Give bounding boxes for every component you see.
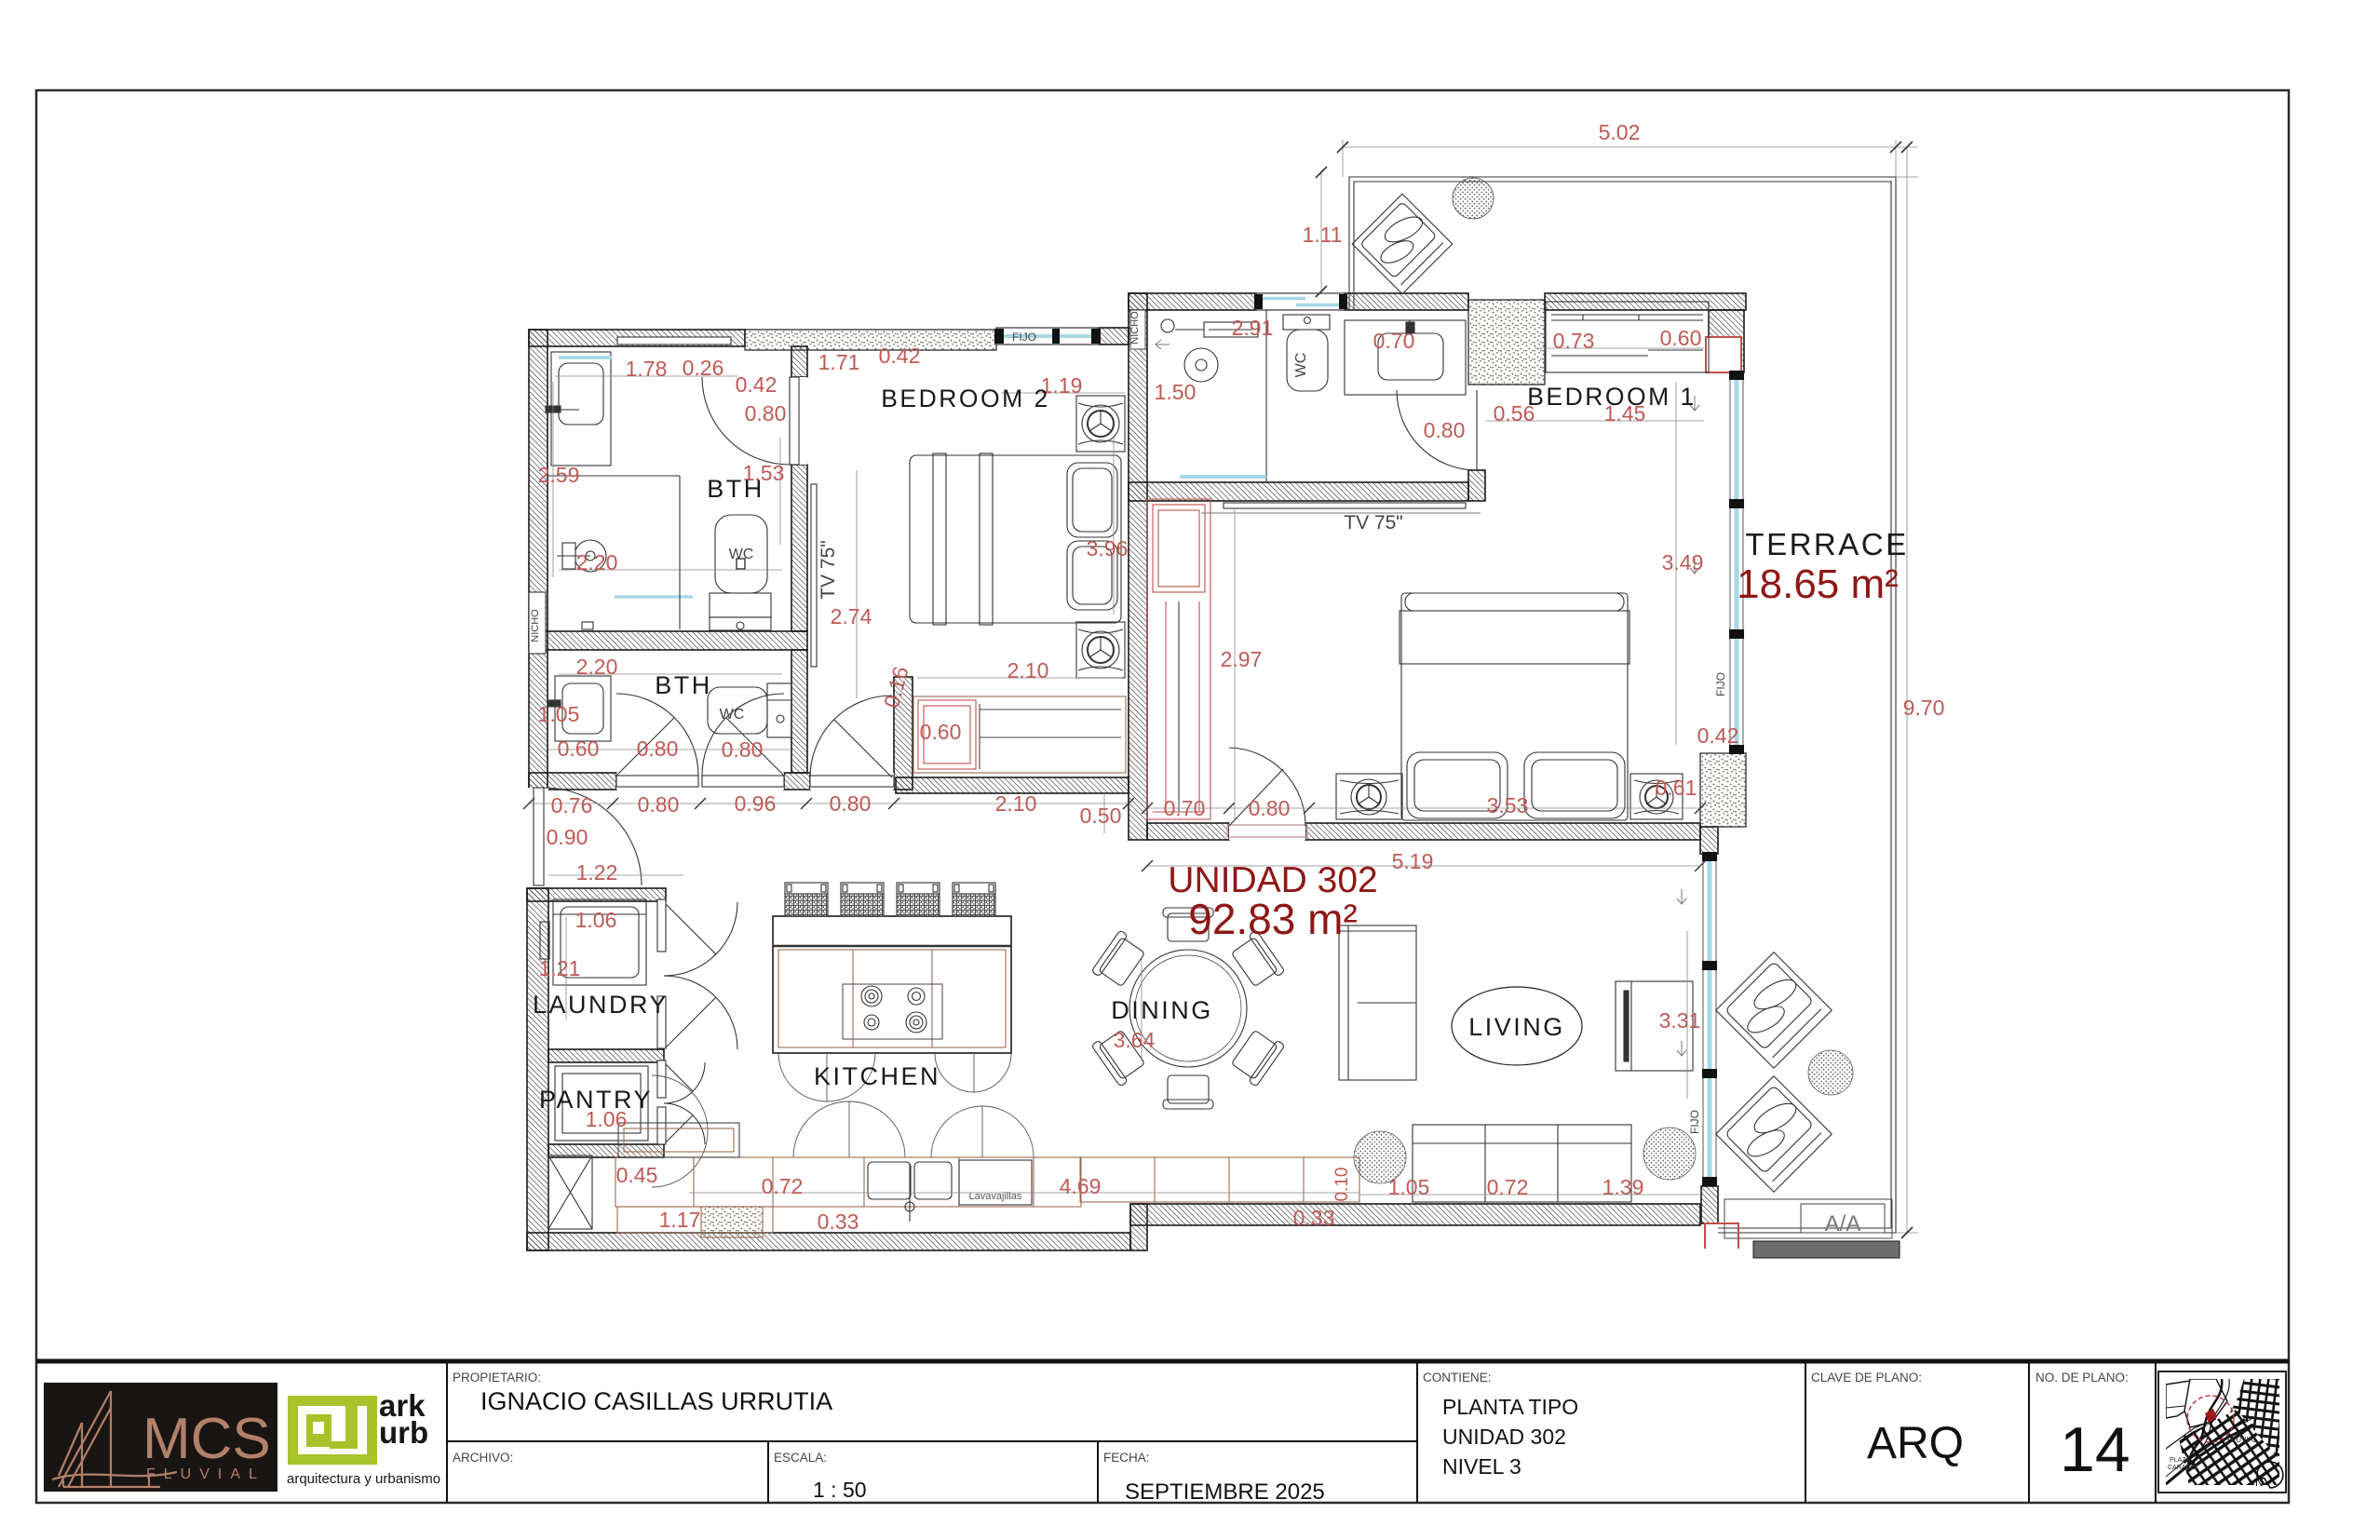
svg-text:0.42: 0.42	[736, 372, 778, 397]
svg-text:0.33: 0.33	[818, 1209, 859, 1234]
svg-text:FIJO: FIJO	[1012, 331, 1036, 344]
svg-text:1.11: 1.11	[1302, 223, 1342, 247]
svg-text:1.71: 1.71	[818, 350, 860, 374]
svg-text:0.72: 0.72	[1487, 1175, 1529, 1199]
svg-text:BTH: BTH	[655, 671, 712, 699]
svg-text:5.19: 5.19	[1392, 849, 1434, 873]
svg-text:4.69: 4.69	[1060, 1174, 1102, 1198]
svg-text:NIVEL 3: NIVEL 3	[1442, 1454, 1521, 1479]
svg-text:18.65 m²: 18.65 m²	[1737, 561, 1899, 607]
svg-text:FIJO: FIJO	[1714, 672, 1727, 696]
svg-text:0.61: 0.61	[1656, 776, 1697, 800]
svg-text:LAUNDRY: LAUNDRY	[533, 991, 669, 1019]
svg-text:NO. DE PLANO:: NO. DE PLANO:	[2035, 1371, 2129, 1385]
svg-text:BTH: BTH	[707, 475, 764, 503]
svg-text:1.21: 1.21	[539, 956, 581, 980]
svg-text:0.45: 0.45	[616, 1163, 658, 1187]
svg-text:0.76: 0.76	[551, 793, 593, 817]
svg-text:2.59: 2.59	[538, 463, 580, 487]
svg-text:FLUVIAL: FLUVIAL	[146, 1466, 265, 1482]
svg-text:0.70: 0.70	[1373, 329, 1415, 353]
svg-text:arquitectura y urbanismo: arquitectura y urbanismo	[287, 1471, 440, 1487]
svg-text:0.42: 0.42	[1697, 723, 1739, 748]
svg-text:KITCHEN: KITCHEN	[814, 1062, 940, 1090]
svg-text:CARACOL: CARACOL	[2168, 1465, 2199, 1471]
svg-text:IGNACIO CASILLAS URRUTIA: IGNACIO CASILLAS URRUTIA	[480, 1387, 832, 1415]
svg-text:1.39: 1.39	[1602, 1175, 1644, 1199]
svg-text:9.70: 9.70	[1903, 696, 1945, 720]
svg-text:WC: WC	[1293, 353, 1309, 378]
svg-text:3.31: 3.31	[1659, 1008, 1701, 1033]
svg-text:CONTIENE:: CONTIENE:	[1423, 1371, 1492, 1385]
svg-text:0.80: 0.80	[830, 791, 872, 816]
svg-text:BEDROOM 2: BEDROOM 2	[881, 385, 1050, 412]
svg-text:3.64: 3.64	[1114, 1028, 1156, 1052]
svg-text:0.96: 0.96	[735, 791, 777, 816]
svg-text:3.96: 3.96	[1087, 536, 1129, 561]
svg-text:PROPIETARIO:: PROPIETARIO:	[453, 1371, 541, 1385]
svg-text:FIJO: FIJO	[1688, 1110, 1701, 1134]
svg-text:FECHA:: FECHA:	[1103, 1451, 1150, 1465]
svg-text:TV 75": TV 75"	[1344, 512, 1402, 534]
svg-text:PLANTA TIPO: PLANTA TIPO	[1442, 1395, 1578, 1419]
svg-text:0.80: 0.80	[638, 792, 680, 817]
svg-text:A/A: A/A	[1825, 1211, 1861, 1236]
svg-text:N: N	[2255, 1476, 2264, 1489]
svg-text:1.78: 1.78	[626, 357, 668, 381]
svg-text:WC: WC	[720, 707, 745, 723]
svg-text:0.80: 0.80	[1249, 796, 1291, 820]
svg-text:0.50: 0.50	[1080, 804, 1122, 828]
svg-text:2.91: 2.91	[1232, 316, 1274, 340]
svg-text:0.60: 0.60	[1660, 326, 1702, 350]
svg-text:0.60: 0.60	[558, 736, 600, 761]
svg-text:0.80: 0.80	[1424, 418, 1466, 442]
svg-text:0.80: 0.80	[745, 401, 787, 426]
svg-text:SEPTIEMBRE 2025: SEPTIEMBRE 2025	[1125, 1479, 1325, 1505]
svg-text:ESCALA:: ESCALA:	[774, 1451, 827, 1465]
svg-text:WC: WC	[729, 547, 754, 562]
svg-text:ARCHIVO:: ARCHIVO:	[453, 1451, 513, 1465]
svg-text:urb: urb	[379, 1415, 428, 1450]
svg-text:DINING: DINING	[1111, 996, 1213, 1024]
svg-text:CLAVE DE PLANO:: CLAVE DE PLANO:	[1811, 1371, 1922, 1385]
svg-text:0.60: 0.60	[920, 720, 962, 744]
svg-text:2.10: 2.10	[995, 791, 1037, 816]
svg-text:BEDROOM 1: BEDROOM 1	[1527, 383, 1697, 411]
svg-text:3.53: 3.53	[1487, 793, 1529, 817]
svg-text:1.22: 1.22	[576, 860, 618, 885]
svg-text:1.05: 1.05	[1388, 1175, 1430, 1199]
svg-text:2.97: 2.97	[1221, 647, 1263, 671]
svg-text:1.17: 1.17	[659, 1208, 701, 1232]
svg-text:2.74: 2.74	[831, 604, 872, 628]
svg-text:0.72: 0.72	[762, 1174, 804, 1198]
svg-text:NICHO: NICHO	[530, 609, 541, 642]
svg-text:1.06: 1.06	[575, 908, 617, 932]
svg-text:FLUVIAL: FLUVIAL	[2227, 1436, 2258, 1444]
svg-text:0.80: 0.80	[722, 737, 764, 762]
svg-text:2.10: 2.10	[1007, 658, 1049, 682]
svg-text:0.73: 0.73	[1553, 329, 1595, 353]
svg-text:MCS: MCS	[142, 1407, 271, 1471]
svg-text:0.80: 0.80	[637, 736, 679, 761]
svg-text:0.26: 0.26	[683, 356, 724, 380]
svg-text:ARQ: ARQ	[1867, 1419, 1964, 1468]
svg-text:NICHO: NICHO	[1129, 311, 1141, 344]
svg-text:0.33: 0.33	[1293, 1206, 1335, 1230]
svg-text:LIVING: LIVING	[1468, 1013, 1565, 1041]
svg-text:1.50: 1.50	[1155, 380, 1197, 404]
svg-text:2.20: 2.20	[576, 550, 618, 574]
svg-text:1.05: 1.05	[538, 702, 580, 726]
svg-text:0.10: 0.10	[1332, 1168, 1352, 1202]
svg-text:5.02: 5.02	[1599, 120, 1641, 144]
svg-text:2.20: 2.20	[576, 655, 618, 679]
svg-text:3.49: 3.49	[1662, 550, 1704, 574]
svg-text:14: 14	[2060, 1414, 2130, 1485]
svg-text:PLAZA: PLAZA	[2170, 1457, 2191, 1464]
svg-text:0.42: 0.42	[879, 344, 921, 368]
svg-text:TV 75": TV 75"	[818, 540, 839, 599]
svg-text:0.70: 0.70	[1164, 796, 1206, 820]
svg-text:TERRACE: TERRACE	[1745, 527, 1908, 561]
svg-text:PANTRY: PANTRY	[539, 1086, 653, 1114]
svg-text:92.83 m²: 92.83 m²	[1188, 895, 1358, 943]
svg-text:1 : 50: 1 : 50	[813, 1478, 867, 1502]
svg-text:0.90: 0.90	[547, 825, 588, 849]
svg-text:UNIDAD 302: UNIDAD 302	[1442, 1425, 1566, 1449]
